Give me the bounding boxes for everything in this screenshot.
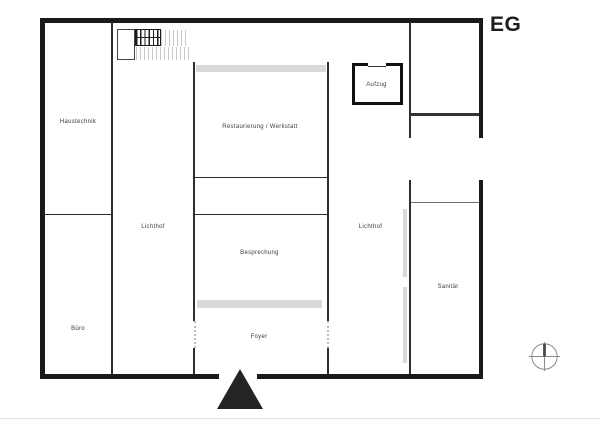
outer-wall-right-upper bbox=[479, 18, 484, 138]
room-label-buero: Büro bbox=[71, 326, 85, 332]
room-label-restaurierung: Restaurierung / Werkstatt bbox=[222, 124, 297, 130]
wall-right-wing-lower bbox=[409, 180, 411, 374]
glass-band-foyer bbox=[197, 300, 322, 308]
wall-right-wing-upper bbox=[409, 22, 411, 138]
room-label-foyer: Foyer bbox=[251, 334, 268, 340]
wall-central-left-upper bbox=[193, 62, 195, 321]
outer-wall-right-lower bbox=[479, 180, 484, 379]
glass-band-lichthof-right-lower bbox=[403, 287, 407, 363]
room-label-aufzug: Aufzug bbox=[366, 82, 386, 88]
room-label-lichthof-left: Lichthof bbox=[141, 224, 164, 230]
room-label-lichthof-right: Lichthof bbox=[359, 224, 382, 230]
wall-central-right-upper bbox=[327, 62, 329, 321]
wall-central-left-lower bbox=[193, 348, 195, 374]
floor-plan-canvas: EG Haustechni bbox=[0, 0, 600, 424]
wall-haustechnik-buero bbox=[43, 214, 111, 216]
wall-haustechnik-lichthof bbox=[111, 22, 113, 374]
outer-wall-bottom-right bbox=[257, 374, 483, 379]
entrance-marker-icon bbox=[217, 369, 263, 409]
outer-wall-bottom-left bbox=[40, 374, 219, 379]
wall-opening-foyer-left bbox=[194, 321, 196, 349]
elevator-door-line bbox=[368, 66, 386, 67]
page-bottom-rule bbox=[0, 418, 600, 419]
glass-band-restaurierung bbox=[196, 65, 326, 73]
outer-wall-left bbox=[40, 18, 45, 379]
stairs-center-line bbox=[136, 37, 160, 38]
stairs-landing bbox=[117, 29, 135, 60]
north-compass-icon bbox=[527, 339, 563, 375]
floor-title: EG bbox=[490, 13, 521, 37]
stairs-flight-lower-light bbox=[136, 47, 189, 60]
wall-upper-right-room-bottom bbox=[411, 113, 479, 116]
wall-central-right-lower bbox=[327, 348, 329, 374]
glass-band-lichthof-right-upper bbox=[403, 209, 407, 277]
room-label-haustechnik: Haustechnik bbox=[60, 119, 96, 125]
wall-sanitaer-top bbox=[411, 202, 479, 204]
room-label-sanitaer: Sanitär bbox=[437, 284, 458, 290]
wall-besprechung-top bbox=[195, 214, 327, 216]
wall-opening-foyer-right bbox=[327, 321, 329, 349]
stairs-flight-upper-light bbox=[161, 30, 189, 47]
outer-wall-top bbox=[40, 18, 483, 23]
wall-restaurierung-bottom bbox=[195, 177, 327, 179]
room-label-besprechung: Besprechung bbox=[240, 250, 279, 256]
